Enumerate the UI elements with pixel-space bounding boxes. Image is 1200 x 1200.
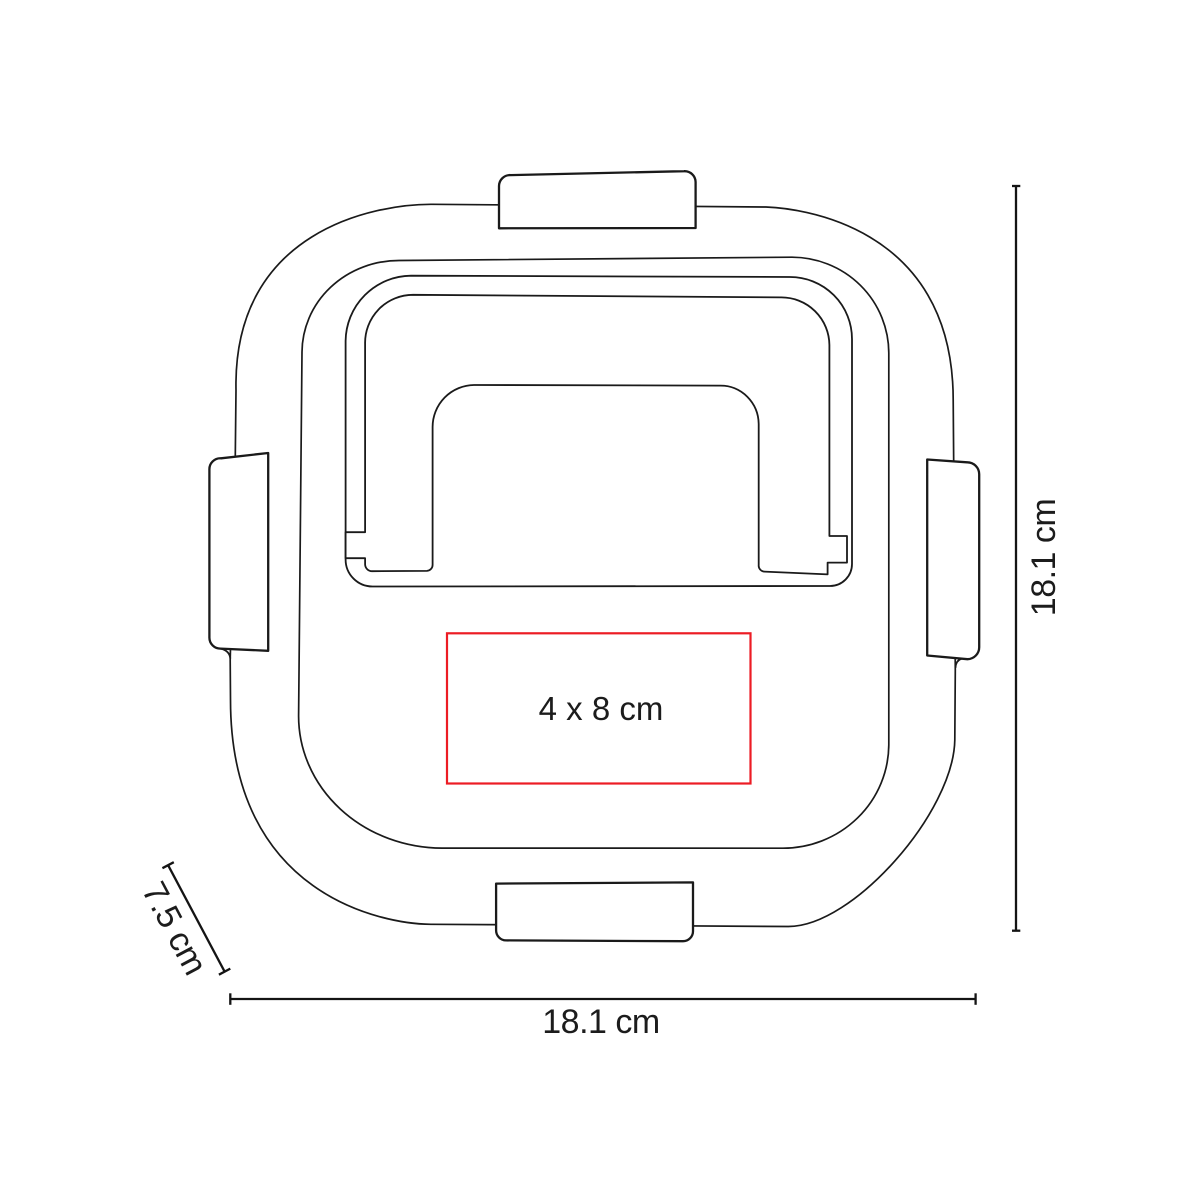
svg-text:4 x 8 cm: 4 x 8 cm [539, 690, 664, 727]
svg-text:18.1 cm: 18.1 cm [1025, 499, 1063, 616]
svg-text:18.1 cm: 18.1 cm [542, 1003, 659, 1041]
